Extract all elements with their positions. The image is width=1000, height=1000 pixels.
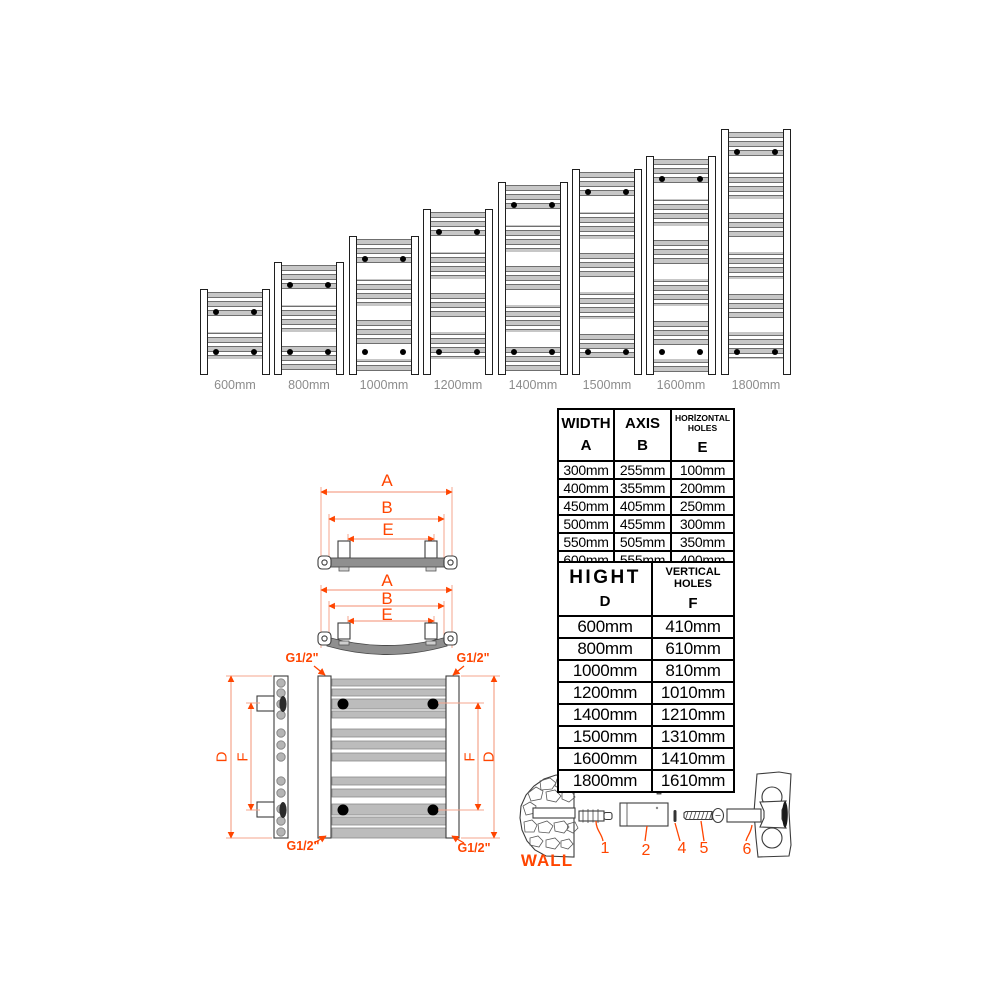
width-table-cell: 250mm bbox=[671, 497, 734, 515]
part-number-6: 6 bbox=[743, 841, 752, 859]
spacer-sleeve bbox=[620, 803, 668, 826]
height-table-cell: 1500mm bbox=[558, 726, 652, 748]
width-table-row: 550mm505mm350mm bbox=[558, 533, 734, 551]
height-table-row: 1600mm1410mm bbox=[558, 748, 734, 770]
part-number-5: 5 bbox=[700, 840, 709, 858]
height-table-row: 1400mm1210mm bbox=[558, 704, 734, 726]
dim-label-e-curved: E bbox=[381, 605, 392, 625]
width-table-cell: 300mm bbox=[671, 515, 734, 533]
height-table-row: 1800mm1610mm bbox=[558, 770, 734, 792]
col-title: WIDTH bbox=[559, 416, 613, 432]
height-table-header-hight: HIGHT D bbox=[558, 562, 652, 616]
width-table: WIDTH A AXIS B HORİZONTAL HOLES E 300mm2… bbox=[557, 408, 735, 570]
height-table-cell: 1600mm bbox=[558, 748, 652, 770]
height-table-row: 1000mm810mm bbox=[558, 660, 734, 682]
dim-label-d-left: D bbox=[214, 752, 231, 763]
height-table-row: 600mm410mm bbox=[558, 616, 734, 638]
dim-label-a-straight: A bbox=[381, 471, 392, 491]
col-letter: A bbox=[559, 437, 613, 454]
height-table-row: 1500mm1310mm bbox=[558, 726, 734, 748]
height-table-cell: 1400mm bbox=[558, 704, 652, 726]
width-table-cell: 100mm bbox=[671, 461, 734, 479]
col-title: VERTICAL bbox=[653, 566, 733, 578]
width-table-row: 450mm405mm250mm bbox=[558, 497, 734, 515]
height-table-cell: 600mm bbox=[558, 616, 652, 638]
col-letter: E bbox=[672, 439, 733, 456]
width-table-cell: 255mm bbox=[614, 461, 671, 479]
diagram-geometry bbox=[0, 0, 1000, 1000]
thread-label-top-left: G1/2" bbox=[285, 651, 318, 665]
height-table-cell: 1210mm bbox=[652, 704, 734, 726]
col-title: AXIS bbox=[615, 416, 670, 432]
height-table-cell: 810mm bbox=[652, 660, 734, 682]
height-table-cell: 1010mm bbox=[652, 682, 734, 704]
width-table-cell: 550mm bbox=[558, 533, 614, 551]
width-table-cell: 355mm bbox=[614, 479, 671, 497]
width-table-header-axis: AXIS B bbox=[614, 409, 671, 461]
col-letter: B bbox=[615, 437, 670, 454]
dim-label-a-curved: A bbox=[381, 571, 392, 591]
width-table-cell: 500mm bbox=[558, 515, 614, 533]
col-title: HOLES bbox=[672, 424, 733, 434]
height-table-cell: 1000mm bbox=[558, 660, 652, 682]
height-table-cell: 800mm bbox=[558, 638, 652, 660]
width-table-row: 400mm355mm200mm bbox=[558, 479, 734, 497]
height-table: HIGHT D VERTICAL HOLES F 600mm410mm800mm… bbox=[557, 561, 735, 793]
height-table-cell: 410mm bbox=[652, 616, 734, 638]
height-table-cell: 1410mm bbox=[652, 748, 734, 770]
height-table-header-vertical-holes: VERTICAL HOLES F bbox=[652, 562, 734, 616]
width-table-row: 500mm455mm300mm bbox=[558, 515, 734, 533]
width-table-cell: 405mm bbox=[614, 497, 671, 515]
width-table-cell: 505mm bbox=[614, 533, 671, 551]
col-title: HIGHT bbox=[559, 568, 651, 588]
part-number-4: 4 bbox=[678, 840, 687, 858]
part-number-1: 1 bbox=[601, 840, 610, 858]
dim-label-b-straight: B bbox=[381, 498, 392, 518]
width-table-cell: 400mm bbox=[558, 479, 614, 497]
thread-label-bottom-right: G1/2" bbox=[457, 841, 490, 855]
dim-label-f-right: F bbox=[462, 752, 479, 761]
col-letter: F bbox=[653, 595, 733, 612]
width-table-cell: 200mm bbox=[671, 479, 734, 497]
col-letter: D bbox=[559, 593, 651, 610]
width-table-cell: 350mm bbox=[671, 533, 734, 551]
width-table-cell: 455mm bbox=[614, 515, 671, 533]
height-table-row: 1200mm1010mm bbox=[558, 682, 734, 704]
part-number-2: 2 bbox=[642, 842, 651, 860]
dim-label-f-left: F bbox=[235, 752, 252, 761]
bracket-rod-and-rail bbox=[727, 772, 791, 857]
dim-label-d-right: D bbox=[481, 752, 498, 763]
width-table-cell: 300mm bbox=[558, 461, 614, 479]
height-table-cell: 610mm bbox=[652, 638, 734, 660]
thread-label-bottom-left: G1/2" bbox=[286, 839, 319, 853]
height-table-cell: 1610mm bbox=[652, 770, 734, 792]
width-table-header-horizontal-holes: HORİZONTAL HOLES E bbox=[671, 409, 734, 461]
thread-label-top-right: G1/2" bbox=[456, 651, 489, 665]
pin bbox=[674, 810, 677, 822]
wall-label: WALL bbox=[521, 851, 573, 871]
towel-radiator-spec-sheet: 600mm800mm1000mm1200mm1400mm1500mm1600mm… bbox=[0, 0, 1000, 1000]
height-table-cell: 1310mm bbox=[652, 726, 734, 748]
width-table-row: 300mm255mm100mm bbox=[558, 461, 734, 479]
height-table-cell: 1800mm bbox=[558, 770, 652, 792]
col-title: HOLES bbox=[653, 578, 733, 590]
height-table-row: 800mm610mm bbox=[558, 638, 734, 660]
screw bbox=[684, 809, 724, 823]
wall-plug bbox=[579, 809, 612, 823]
width-table-cell: 450mm bbox=[558, 497, 614, 515]
dim-label-e-straight: E bbox=[382, 520, 393, 540]
width-table-header-width: WIDTH A bbox=[558, 409, 614, 461]
height-table-cell: 1200mm bbox=[558, 682, 652, 704]
